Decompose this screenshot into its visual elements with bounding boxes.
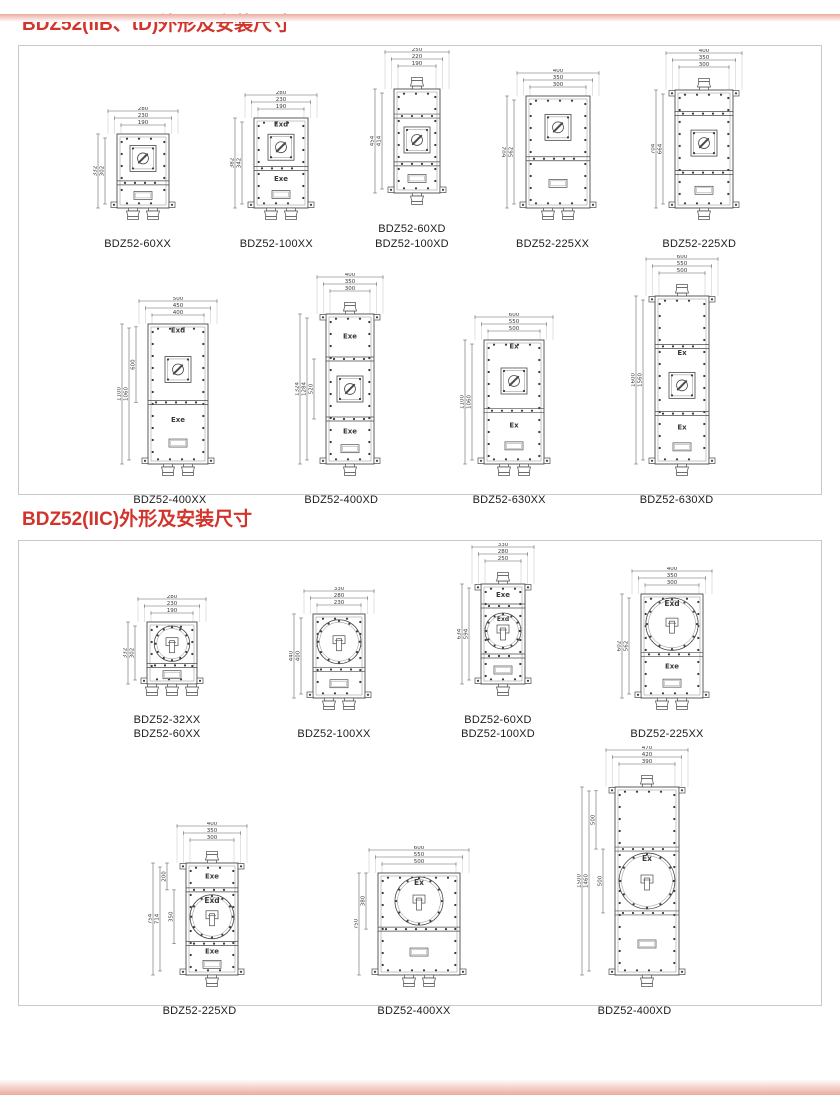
svg-text:500: 500 (676, 268, 687, 274)
svg-text:704: 704 (651, 143, 656, 154)
svg-text:550: 550 (509, 319, 520, 325)
technical-drawing: 250220190454414BDZ52-60XDBDZ52-100XD (370, 48, 454, 252)
svg-text:300: 300 (699, 61, 710, 67)
svg-text:300: 300 (552, 81, 563, 87)
svg-text:Exe: Exe (343, 333, 357, 341)
technical-drawing: 47042039015001460500500ExBDZ52-400XD (577, 746, 693, 1019)
svg-text:350: 350 (667, 573, 678, 579)
drawings-panel-iib: 280230190332302BDZ52-60XX280230190382342… (18, 45, 822, 495)
drawings-row: 280230190332302BDZ52-60XX280230190382342… (19, 46, 821, 254)
svg-text:350: 350 (552, 74, 563, 80)
model-label: BDZ52-630XX (473, 493, 546, 508)
svg-text:380: 380 (360, 896, 366, 907)
svg-text:594: 594 (463, 628, 469, 639)
svg-text:230: 230 (167, 600, 178, 606)
svg-text:454: 454 (370, 135, 375, 146)
svg-text:Exd: Exd (274, 120, 288, 128)
technical-drawing: 400350300704664BDZ52-225XD (651, 49, 747, 252)
technical-drawing: 400350300754714200350ExeExdExeBDZ52-225X… (148, 822, 252, 1019)
svg-text:500: 500 (590, 814, 596, 825)
svg-text:1500: 1500 (577, 874, 582, 888)
technical-drawing: 280230190382342ExdExeBDZ52-100XX (230, 91, 322, 252)
model-label: BDZ52-400XD (598, 1004, 672, 1019)
drawings-panel-iic: 280230190332302BDZ52-32XXBDZ52-60XX33028… (18, 540, 822, 1006)
technical-drawing: 50045040011001060600ExdExeBDZ52-400XX (117, 297, 222, 508)
svg-text:400: 400 (173, 310, 184, 316)
enclosure-diagram: 47042039015001460500500Ex (577, 746, 693, 995)
svg-text:500: 500 (173, 297, 184, 302)
svg-text:390: 390 (641, 759, 652, 765)
svg-text:500: 500 (597, 876, 603, 887)
technical-drawing: 400350300602562ExdExeBDZ52-225XX (617, 567, 717, 742)
enclosure-diagram: 280230190332302 (123, 595, 211, 704)
svg-text:600: 600 (131, 359, 137, 370)
svg-text:414: 414 (376, 135, 382, 146)
svg-text:250: 250 (412, 48, 423, 53)
model-label: BDZ52-400XD (304, 493, 378, 508)
enclosure-diagram: 250220190454414 (370, 48, 454, 213)
model-label: BDZ52-100XX (297, 727, 370, 742)
model-label: BDZ52-225XD (662, 237, 736, 252)
svg-text:Exe: Exe (665, 663, 679, 671)
enclosure-diagram: 400350300602562ExdExe (617, 567, 717, 718)
svg-text:280: 280 (334, 593, 345, 599)
svg-text:190: 190 (412, 61, 423, 67)
svg-text:302: 302 (99, 165, 105, 176)
model-label: BDZ52-225XD (163, 1004, 237, 1019)
drawings-row: 50045040011001060600ExdExeBDZ52-400XX400… (19, 253, 821, 510)
svg-text:350: 350 (168, 911, 174, 922)
svg-text:Exd: Exd (171, 327, 185, 335)
svg-text:634: 634 (457, 628, 462, 639)
drawings-row: 280230190332302BDZ52-32XXBDZ52-60XX33028… (19, 541, 821, 745)
svg-text:1460: 1460 (583, 874, 589, 888)
svg-text:562: 562 (623, 641, 629, 652)
section-iic: BDZ52(IIC)外形及安装尺寸 280230190332302BDZ52-3… (0, 509, 840, 1006)
catalog-page: BDZ52(IIB、tD)外形及安装尺寸 280230190332302BDZ5… (0, 14, 840, 1006)
svg-text:Ex: Ex (510, 422, 520, 430)
svg-text:1060: 1060 (124, 387, 130, 401)
svg-text:400: 400 (295, 651, 301, 662)
svg-text:1060: 1060 (467, 395, 473, 409)
svg-text:450: 450 (173, 303, 184, 309)
svg-text:280: 280 (137, 107, 148, 112)
svg-text:1100: 1100 (460, 395, 465, 409)
svg-text:280: 280 (276, 91, 287, 96)
svg-text:400: 400 (345, 273, 356, 278)
svg-text:Exe: Exe (171, 417, 185, 425)
svg-text:600: 600 (676, 255, 687, 260)
svg-text:440: 440 (289, 651, 294, 662)
technical-drawing: 600550500750380ExBDZ52-400XX (354, 846, 474, 1019)
technical-drawing: 330280230440400BDZ52-100XX (289, 587, 379, 742)
enclosure-diagram: 400350300704664 (651, 49, 747, 228)
svg-text:300: 300 (206, 835, 217, 841)
enclosure-diagram: 280230190332302 (93, 107, 183, 228)
svg-text:1600: 1600 (631, 373, 636, 387)
svg-text:602: 602 (502, 146, 507, 157)
svg-text:500: 500 (509, 326, 520, 332)
svg-text:Exd: Exd (497, 616, 509, 623)
svg-text:Exe: Exe (496, 591, 510, 599)
svg-text:400: 400 (552, 69, 563, 74)
svg-text:250: 250 (498, 555, 509, 561)
svg-text:280: 280 (167, 595, 178, 600)
section-iib-td: BDZ52(IIB、tD)外形及安装尺寸 280230190332302BDZ5… (0, 14, 840, 495)
model-label: BDZ52-225XX (516, 237, 589, 252)
svg-text:420: 420 (641, 752, 652, 758)
enclosure-diagram: 60055050016001560ExEx (631, 255, 723, 484)
technical-drawing: 60055050016001560ExExBDZ52-630XD (631, 255, 723, 508)
model-label: BDZ52-225XX (630, 727, 703, 742)
svg-text:550: 550 (414, 852, 425, 858)
svg-text:520: 520 (308, 384, 314, 395)
svg-text:Ex: Ex (642, 854, 652, 863)
svg-text:200: 200 (161, 871, 167, 882)
svg-text:750: 750 (354, 919, 359, 930)
model-label: BDZ52-60XX (104, 237, 171, 252)
svg-text:Exe: Exe (204, 873, 218, 881)
svg-text:230: 230 (276, 96, 287, 102)
model-label: BDZ52-400XX (133, 493, 206, 508)
section-title-iic: BDZ52(IIC)外形及安装尺寸 (22, 509, 840, 532)
svg-text:Ex: Ex (677, 424, 687, 432)
svg-text:Ex: Ex (414, 878, 424, 887)
enclosure-diagram: 60055050011001060ExEx (460, 313, 558, 484)
svg-text:332: 332 (123, 647, 128, 658)
svg-text:350: 350 (206, 828, 217, 834)
svg-text:1284: 1284 (301, 382, 307, 396)
svg-text:230: 230 (137, 112, 148, 118)
model-label: BDZ52-60XDBDZ52-100XD (461, 713, 535, 743)
technical-drawing: 280230190332302BDZ52-60XX (93, 107, 183, 252)
svg-text:330: 330 (334, 587, 345, 592)
enclosure-diagram: 50045040011001060600ExdExe (117, 297, 222, 484)
svg-text:1100: 1100 (117, 387, 122, 401)
model-label: BDZ52-630XD (640, 493, 714, 508)
model-label: BDZ52-100XX (240, 237, 313, 252)
svg-text:220: 220 (412, 54, 423, 60)
svg-text:230: 230 (334, 600, 345, 606)
svg-text:280: 280 (498, 548, 509, 554)
svg-text:Ex: Ex (677, 349, 687, 357)
svg-text:190: 190 (167, 607, 178, 613)
svg-text:Exd: Exd (204, 896, 219, 905)
svg-text:1560: 1560 (637, 373, 643, 387)
enclosure-diagram: 280230190382342ExdExe (230, 91, 322, 228)
svg-text:714: 714 (154, 914, 160, 925)
svg-text:470: 470 (641, 746, 652, 751)
technical-drawing: 280230190332302BDZ52-32XXBDZ52-60XX (123, 595, 211, 743)
svg-text:382: 382 (230, 157, 235, 168)
enclosure-diagram: 330280250634594ExeExd (457, 543, 539, 704)
enclosure-diagram: 40035030013241284520ExeExe (295, 273, 388, 484)
svg-text:400: 400 (206, 822, 217, 827)
svg-text:342: 342 (237, 157, 243, 168)
svg-text:350: 350 (699, 54, 710, 60)
svg-text:300: 300 (345, 286, 356, 292)
svg-text:550: 550 (676, 261, 687, 267)
svg-text:600: 600 (509, 313, 520, 318)
svg-text:602: 602 (617, 641, 622, 652)
model-label: BDZ52-400XX (377, 1004, 450, 1019)
svg-text:500: 500 (414, 859, 425, 865)
svg-text:664: 664 (658, 143, 664, 154)
enclosure-diagram: 330280230440400 (289, 587, 379, 718)
svg-text:600: 600 (414, 846, 425, 851)
svg-text:190: 190 (276, 103, 287, 109)
svg-text:Exe: Exe (274, 175, 288, 183)
page-edge-bottom (0, 1079, 840, 1095)
technical-drawing: 400350300602562BDZ52-225XX (502, 69, 604, 252)
technical-drawing: 40035030013241284520ExeExeBDZ52-400XD (295, 273, 388, 508)
svg-text:1324: 1324 (295, 382, 300, 396)
svg-text:562: 562 (508, 146, 514, 157)
enclosure-diagram: 400350300602562 (502, 69, 604, 228)
svg-text:754: 754 (148, 914, 153, 925)
svg-text:Exe: Exe (343, 428, 357, 436)
svg-text:190: 190 (137, 119, 148, 125)
svg-text:332: 332 (93, 165, 98, 176)
model-label: BDZ52-60XDBDZ52-100XD (375, 222, 449, 252)
svg-text:350: 350 (345, 279, 356, 285)
technical-drawing: 60055050011001060ExExBDZ52-630XX (460, 313, 558, 508)
svg-text:400: 400 (699, 49, 710, 54)
svg-text:300: 300 (667, 580, 678, 586)
svg-text:330: 330 (498, 543, 509, 548)
svg-text:302: 302 (129, 647, 135, 658)
svg-text:Exd: Exd (664, 599, 679, 608)
enclosure-diagram: 400350300754714200350ExeExdExe (148, 822, 252, 995)
enclosure-diagram: 600550500750380Ex (354, 846, 474, 995)
page-edge-top (0, 14, 840, 22)
svg-text:400: 400 (667, 567, 678, 572)
technical-drawing: 330280250634594ExeExdBDZ52-60XDBDZ52-100… (457, 543, 539, 743)
svg-text:Exe: Exe (204, 948, 218, 956)
model-label: BDZ52-32XXBDZ52-60XX (134, 713, 201, 743)
svg-text:Ex: Ex (510, 343, 520, 351)
drawings-row: 400350300754714200350ExeExdExeBDZ52-225X… (19, 744, 821, 1021)
